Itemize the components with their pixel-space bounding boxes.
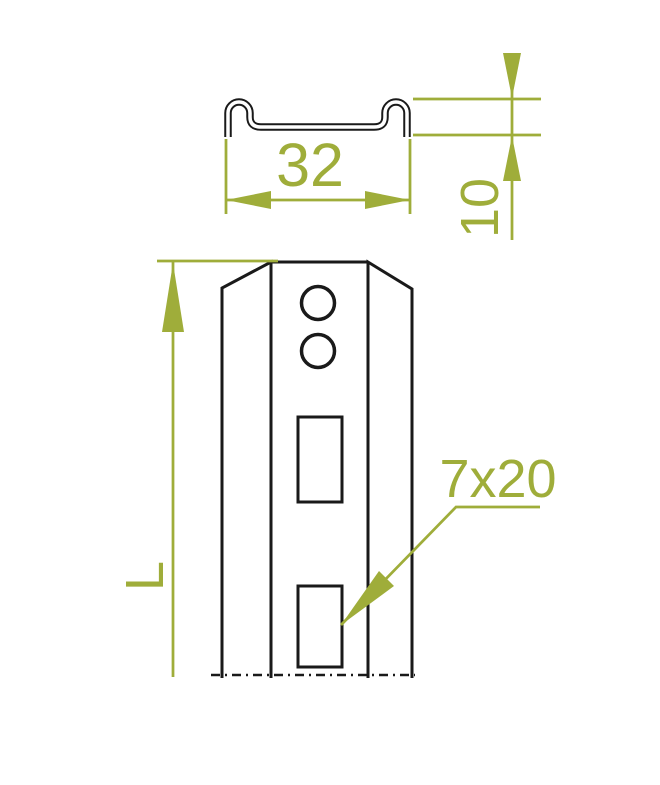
length-arrowhead-up [162, 263, 184, 332]
height-dim-extension-lines [413, 99, 541, 135]
width-dim-value: 32 [276, 131, 344, 199]
drawing-page: 32 10 L 7x20 [0, 0, 660, 785]
slot-hole-lower [298, 586, 342, 667]
length-dim-label: L [115, 561, 175, 591]
slot-leader-line [341, 507, 540, 625]
round-hole-bottom [302, 335, 335, 368]
slot-hole-upper [298, 417, 342, 502]
height-arrowhead-up [503, 136, 521, 181]
slot-size-label: 7x20 [439, 449, 556, 509]
height-dim-value: 10 [450, 178, 510, 238]
width-arrowhead-right [365, 191, 410, 209]
width-arrowhead-left [226, 191, 271, 209]
round-hole-top [302, 287, 335, 320]
body-outline [222, 262, 412, 678]
technical-drawing: 32 10 L 7x20 [0, 0, 660, 785]
dimension-lines [157, 53, 541, 677]
height-arrowhead-down [503, 53, 521, 98]
